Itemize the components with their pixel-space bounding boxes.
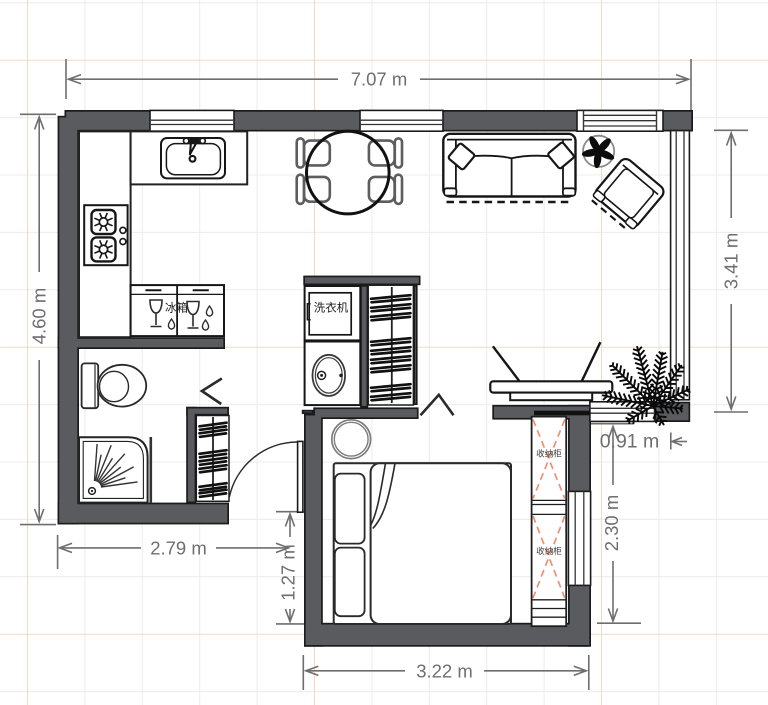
svg-text:3.41 m: 3.41 m	[721, 233, 742, 290]
svg-text:2.30 m: 2.30 m	[601, 495, 622, 552]
svg-text:7.07 m: 7.07 m	[351, 69, 408, 90]
svg-text:4.60 m: 4.60 m	[29, 288, 50, 345]
svg-text:3.22 m: 3.22 m	[416, 660, 473, 681]
svg-text:收纳柜: 收纳柜	[536, 545, 562, 556]
svg-text:冰箱: 冰箱	[165, 301, 188, 315]
svg-text:收纳柜: 收纳柜	[536, 448, 562, 459]
svg-text:2.79 m: 2.79 m	[150, 537, 207, 558]
svg-text:0.91 m: 0.91 m	[600, 431, 660, 453]
svg-text:洗衣机: 洗衣机	[314, 301, 349, 315]
svg-text:1.27 m: 1.27 m	[278, 544, 299, 601]
